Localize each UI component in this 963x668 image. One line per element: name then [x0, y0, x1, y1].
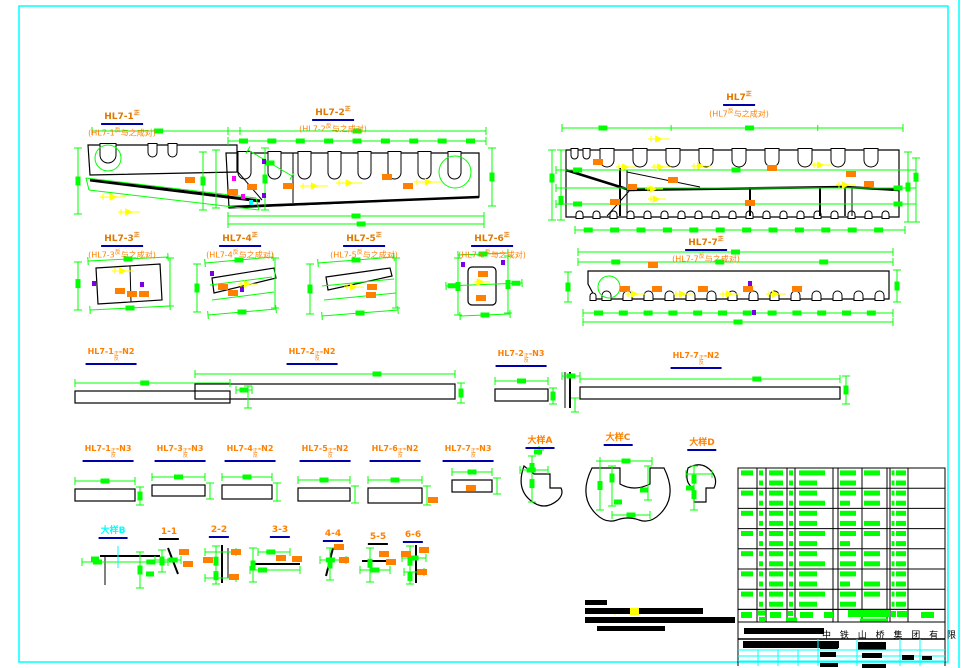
- dim-text-blob: [844, 386, 849, 395]
- dim-text-blob: [160, 557, 165, 566]
- weld-number-blob: [403, 183, 413, 189]
- dim-text-blob: [373, 372, 382, 377]
- text-blob: [759, 501, 763, 506]
- edge-notch: [627, 211, 634, 218]
- text-blob: [892, 541, 895, 546]
- dim-text-blob: [693, 311, 702, 316]
- table-summary-blob: [759, 617, 766, 621]
- dim-text-blob: [146, 572, 154, 577]
- part-line: [627, 172, 700, 187]
- text-blob: [769, 511, 783, 516]
- flat-bar-outline: [580, 387, 840, 399]
- detail-label-a: 大样A: [526, 436, 555, 449]
- table-summary-blob: [788, 611, 793, 616]
- dim-text-blob: [169, 558, 178, 563]
- view-title-hl7: HL7正 (HL7反与之成对): [709, 85, 769, 120]
- dim-text-blob: [308, 285, 313, 294]
- weld-number-blob: [652, 286, 662, 292]
- text-blob: [741, 511, 753, 516]
- text-blob: [789, 582, 793, 587]
- weld-number-blob: [476, 295, 486, 301]
- view-pair-note: (HL7-3反与之成对): [88, 247, 156, 261]
- u-slot: [732, 149, 746, 168]
- weld-number-blob: [292, 556, 302, 562]
- dim-text-blob: [867, 311, 876, 316]
- plate-label-row4-5: HL7-6正反-N2: [370, 444, 421, 462]
- dim-text-blob: [239, 139, 248, 144]
- u-slot: [798, 149, 812, 168]
- dim-text-blob: [551, 392, 556, 401]
- table-summary-blob: [897, 611, 907, 617]
- dim-text-blob: [550, 174, 555, 183]
- u-slot: [765, 149, 779, 168]
- edge-notch: [593, 211, 600, 218]
- weld-number-blob: [417, 569, 427, 575]
- view-pair-note: (HL7-4反与之成对): [206, 247, 274, 261]
- edge-notch: [791, 291, 800, 301]
- edge-notch: [695, 211, 702, 218]
- weld-arrow: [631, 291, 637, 297]
- table-summary-blob: [770, 612, 781, 618]
- text-blob: [840, 521, 856, 526]
- text-blob: [892, 521, 895, 526]
- color-mark: [748, 281, 752, 286]
- text-blob: [892, 571, 895, 576]
- text-blob: [789, 602, 793, 607]
- dim-text-blob: [251, 561, 256, 570]
- detail-label-c: 大样C: [604, 433, 633, 446]
- dim-text-blob: [238, 310, 247, 315]
- dim-text-blob: [842, 311, 851, 316]
- text-blob: [896, 501, 906, 506]
- weld-number-blob: [127, 291, 137, 297]
- dim-text-blob: [381, 139, 390, 144]
- flat-bar-outline: [222, 485, 272, 499]
- view-title-text: HL7正: [723, 90, 755, 106]
- reference-line: [86, 178, 89, 190]
- dim-text-blob: [517, 379, 526, 384]
- weld-arrow: [120, 268, 126, 274]
- title-bar: [820, 642, 838, 649]
- dim-text-blob: [534, 450, 542, 455]
- text-blob: [789, 521, 793, 526]
- edge-notch: [780, 211, 787, 218]
- edge-notch: [661, 211, 668, 218]
- dim-text-blob: [201, 177, 206, 186]
- dim-text-blob: [573, 202, 582, 207]
- dim-text-blob: [138, 492, 143, 501]
- section-label-1-1: 1-1: [159, 527, 179, 540]
- text-blob: [769, 592, 783, 597]
- view-title-hl7-6: HL7-6正 (HL7-6反与之成对): [458, 226, 526, 261]
- weld-arrow: [653, 196, 659, 202]
- text-blob: [759, 541, 763, 546]
- edge-notch: [712, 211, 719, 218]
- dim-text-blob: [914, 173, 919, 182]
- text-blob: [759, 481, 763, 486]
- dim-text-blob: [792, 311, 801, 316]
- dim-text-blob: [468, 470, 477, 475]
- dim-text-blob: [566, 283, 571, 292]
- dim-text-blob: [594, 311, 603, 316]
- text-blob: [840, 481, 856, 486]
- dim-text-blob: [438, 139, 447, 144]
- flat-bar-outline: [495, 389, 548, 401]
- dim-text-blob: [352, 214, 361, 219]
- text-blob: [799, 541, 817, 546]
- weld-number-blob: [334, 544, 344, 550]
- text-blob: [896, 582, 906, 587]
- dim-text-blob: [610, 474, 615, 483]
- flat-bar-outline: [368, 488, 422, 503]
- flat-bar-outline: [195, 384, 455, 399]
- view-pair-note: (HL7-5反与之成对): [330, 247, 398, 261]
- text-blob: [840, 541, 850, 546]
- dim-text-blob: [408, 572, 413, 581]
- weld-number-blob: [185, 177, 195, 183]
- text-blob: [789, 470, 793, 475]
- color-mark: [232, 176, 236, 181]
- signature-text-bar: [820, 663, 838, 667]
- text-blob: [769, 531, 783, 536]
- dim-text-blob: [567, 374, 576, 379]
- edge-notch: [812, 291, 821, 301]
- text-blob: [759, 491, 763, 496]
- flat-bar-outline: [152, 485, 205, 496]
- weld-arrow: [110, 194, 116, 200]
- edge-notch: [749, 291, 758, 301]
- dim-text-blob: [668, 311, 677, 316]
- title-base: HL7-1: [104, 112, 134, 122]
- dim-text-blob: [745, 126, 754, 131]
- edge-notch: [644, 211, 651, 218]
- dim-text-blob: [409, 139, 418, 144]
- title-sup: 正: [134, 110, 140, 117]
- color-mark: [240, 287, 244, 292]
- view-title-text: HL7-3正: [101, 231, 143, 247]
- weld-number-blob: [247, 184, 257, 190]
- text-blob: [892, 551, 895, 556]
- text-blob: [896, 531, 906, 536]
- dim-text-blob: [821, 228, 830, 233]
- text-blob: [896, 551, 906, 556]
- view-title-hl7-2: HL7-2正 (HL7-2反与之成对): [299, 100, 367, 135]
- dim-tick: [398, 306, 399, 314]
- color-mark: [140, 282, 144, 287]
- text-blob: [759, 592, 763, 597]
- note-text-bar: [585, 600, 607, 605]
- weld-number-blob: [115, 288, 125, 294]
- weld-number-blob: [276, 555, 286, 561]
- text-blob: [799, 582, 817, 587]
- dim-text-blob: [619, 311, 628, 316]
- weld-number-blob: [593, 159, 603, 165]
- dim-text-blob: [874, 228, 883, 233]
- dim-text-blob: [598, 481, 603, 490]
- u-slot: [699, 149, 713, 168]
- text-blob: [741, 551, 753, 556]
- part-line: [229, 197, 479, 207]
- plate-label-row3-3: HL7-2正反-N3: [496, 349, 547, 367]
- edge-notch: [854, 291, 863, 301]
- text-blob: [840, 491, 856, 496]
- signature-text-bar: [820, 652, 836, 657]
- text-blob: [892, 561, 895, 566]
- weld-number-blob: [379, 551, 389, 557]
- view-title-hl7-4: HL7-4正 (HL7-4反与之成对): [206, 226, 274, 261]
- text-blob: [769, 551, 783, 556]
- plate-label-row4-6: HL7-7正反-N3: [443, 444, 494, 462]
- u-slot: [831, 149, 845, 168]
- text-blob: [799, 481, 817, 486]
- dim-text-blob: [126, 306, 135, 311]
- text-blob: [769, 602, 783, 607]
- color-mark: [241, 194, 245, 199]
- dim-text-blob: [76, 279, 81, 288]
- dim-text-blob: [146, 560, 155, 565]
- weld-number-blob: [367, 284, 377, 290]
- table-summary-blob: [786, 618, 797, 622]
- dim-text-blob: [263, 175, 268, 184]
- reference-line: [324, 293, 396, 300]
- dim-text-blob: [353, 139, 362, 144]
- text-blob: [759, 582, 763, 587]
- weld-arrow: [622, 164, 628, 170]
- dim-text-blob: [795, 228, 804, 233]
- weld-number-blob: [792, 286, 802, 292]
- weld-arrow: [126, 209, 132, 215]
- plate-label-row4-4: HL7-5正反-N2: [300, 444, 351, 462]
- edge-notch: [729, 211, 736, 218]
- dim-text-blob: [742, 228, 751, 233]
- text-blob: [741, 470, 753, 475]
- dim-text-blob: [637, 228, 646, 233]
- text-blob: [769, 571, 783, 576]
- u-slot: [168, 144, 177, 158]
- dim-text-blob: [506, 280, 511, 289]
- dim-text-blob: [530, 479, 535, 488]
- color-mark: [92, 281, 96, 286]
- u-slot: [864, 149, 878, 168]
- note-text-bar: [597, 626, 665, 631]
- dim-text-blob: [195, 284, 200, 293]
- edge-notch: [576, 211, 583, 218]
- weld-number-blob: [203, 557, 213, 563]
- text-blob: [896, 521, 906, 526]
- weld-number-blob: [382, 174, 392, 180]
- text-blob: [789, 491, 793, 496]
- dim-text-blob: [769, 228, 778, 233]
- cad-sheet: { "drawing": { "views": [ {"title_base":…: [0, 0, 963, 668]
- plate-label-row3-1: HL7-1正反-N2: [86, 347, 137, 365]
- text-blob: [799, 531, 825, 536]
- view-pair-note: (HL7-1反与之成对): [88, 125, 156, 139]
- weld-number-blob: [228, 290, 238, 296]
- weld-number-blob: [339, 557, 349, 563]
- text-blob: [759, 561, 763, 566]
- dim-text-blob: [611, 260, 620, 265]
- text-blob: [799, 470, 825, 475]
- text-blob: [799, 491, 817, 496]
- text-blob: [799, 561, 825, 566]
- text-blob: [789, 481, 793, 486]
- edge-notch: [882, 211, 889, 218]
- dim-text-blob: [466, 139, 475, 144]
- weld-number-blob: [864, 181, 874, 187]
- u-slot: [328, 152, 341, 180]
- dim-text-blob: [573, 168, 582, 173]
- view-title-hl7-3: HL7-3正 (HL7-3反与之成对): [88, 226, 156, 261]
- text-blob: [892, 511, 895, 516]
- text-blob: [741, 592, 753, 597]
- view-title-text: HL7-7正: [685, 235, 727, 251]
- dim-text-blob: [598, 126, 607, 131]
- text-blob: [789, 531, 793, 536]
- text-blob: [864, 521, 880, 526]
- section-label-4-4: 4-4: [323, 529, 343, 542]
- dim-text-blob: [895, 282, 900, 291]
- text-blob: [864, 582, 880, 587]
- text-blob: [769, 561, 783, 566]
- dim-tick: [276, 305, 277, 313]
- signature-text-bar: [862, 664, 886, 668]
- dim-text-blob: [622, 459, 631, 464]
- u-slot: [418, 152, 431, 180]
- dim-text-blob: [240, 388, 249, 393]
- dim-text-blob: [266, 550, 275, 555]
- dim-text-blob: [490, 173, 495, 182]
- text-blob: [864, 501, 880, 506]
- dim-text-blob: [640, 488, 648, 493]
- flat-bar-outline: [75, 391, 230, 403]
- text-blob: [759, 511, 763, 516]
- text-blob: [840, 511, 856, 516]
- dim-text-blob: [448, 283, 457, 288]
- text-blob: [896, 491, 906, 496]
- dim-text-blob: [267, 139, 276, 144]
- weld-number-blob: [767, 165, 777, 171]
- dim-text-blob: [391, 478, 400, 483]
- view-pair-note: (HL7-7反与之成对): [672, 251, 740, 265]
- dim-text-blob: [743, 311, 752, 316]
- weld-arrow: [630, 608, 639, 615]
- text-blob: [892, 582, 895, 587]
- u-slot: [358, 152, 371, 180]
- text-blob: [741, 571, 753, 576]
- weld-number-blob: [428, 497, 438, 503]
- weld-arrow: [650, 186, 656, 192]
- dim-text-blob: [817, 311, 826, 316]
- signature-text-bar: [902, 655, 914, 660]
- dim-text-blob: [663, 228, 672, 233]
- plate-label-row3-2: HL7-2正反-N2: [287, 347, 338, 365]
- weld-number-blob: [648, 262, 658, 268]
- text-blob: [799, 571, 817, 576]
- text-blob: [840, 602, 856, 607]
- edge-notch: [763, 211, 770, 218]
- text-blob: [799, 511, 817, 516]
- dim-text-blob: [906, 183, 911, 192]
- text-blob: [769, 541, 783, 546]
- text-blob: [840, 561, 856, 566]
- edge-notch: [875, 291, 884, 301]
- dim-text-blob: [848, 228, 857, 233]
- dim-text-blob: [686, 486, 694, 491]
- weld-arrow: [679, 291, 685, 297]
- text-blob: [864, 561, 880, 566]
- detail-label-d: 大样D: [687, 438, 716, 451]
- table-summary-blob: [921, 612, 934, 618]
- text-blob: [759, 531, 763, 536]
- reference-line: [322, 279, 394, 286]
- dim-text-blob: [481, 313, 490, 318]
- text-blob: [892, 531, 895, 536]
- weld-number-blob: [478, 271, 488, 277]
- text-blob: [759, 602, 763, 607]
- section-label-6-6: 6-6: [403, 530, 423, 543]
- note-text-bar: [585, 617, 735, 623]
- detail-d-outline: [687, 465, 716, 502]
- weld-number-blob: [401, 551, 411, 557]
- dim-text-blob: [174, 475, 183, 480]
- text-blob: [896, 592, 906, 597]
- dim-text-blob: [614, 500, 622, 505]
- dim-text-blob: [76, 177, 81, 186]
- table-summary-blob: [758, 611, 765, 616]
- text-blob: [840, 571, 856, 576]
- view-pair-note: (HL7反与之成对): [709, 106, 769, 120]
- dim-text-blob: [356, 311, 365, 316]
- dim-text-blob: [91, 557, 99, 562]
- text-blob: [892, 470, 895, 475]
- text-blob: [799, 521, 817, 526]
- table-summary-blob: [848, 610, 890, 617]
- signature-text-bar: [862, 653, 882, 658]
- plate-label-row4-1: HL7-1正反-N3: [83, 444, 134, 462]
- color-mark: [210, 271, 214, 276]
- weld-number-blob: [179, 549, 189, 555]
- color-mark: [249, 200, 253, 205]
- edge-notch: [686, 291, 695, 301]
- view-pair-note: (HL7-6反与之成对): [458, 247, 526, 261]
- color-mark: [461, 262, 465, 267]
- text-blob: [892, 491, 895, 496]
- text-blob: [769, 582, 783, 587]
- color-mark: [262, 193, 266, 198]
- dim-text-blob: [140, 381, 149, 386]
- dim-text-blob: [692, 475, 697, 484]
- flat-bar-outline: [75, 489, 135, 501]
- text-blob: [799, 551, 817, 556]
- weld-number-blob: [745, 200, 755, 206]
- view-title-text: HL7-1正: [101, 109, 143, 125]
- table-summary-blob: [824, 612, 833, 618]
- weld-number-blob: [466, 485, 476, 491]
- weld-arrow: [311, 183, 317, 189]
- dim-text-blob: [214, 571, 219, 580]
- edge-notch: [602, 291, 611, 301]
- dim-text-blob: [138, 566, 143, 575]
- note-text-bar: [585, 608, 703, 614]
- dim-text-blob: [584, 228, 593, 233]
- section-label-3-3: 3-3: [270, 525, 290, 538]
- dim-text-blob: [768, 311, 777, 316]
- text-blob: [896, 511, 906, 516]
- text-blob: [840, 551, 856, 556]
- edge-notch: [797, 211, 804, 218]
- table-summary-blob: [891, 611, 896, 617]
- view-title-hl7-7: HL7-7正 (HL7-7反与之成对): [672, 230, 740, 265]
